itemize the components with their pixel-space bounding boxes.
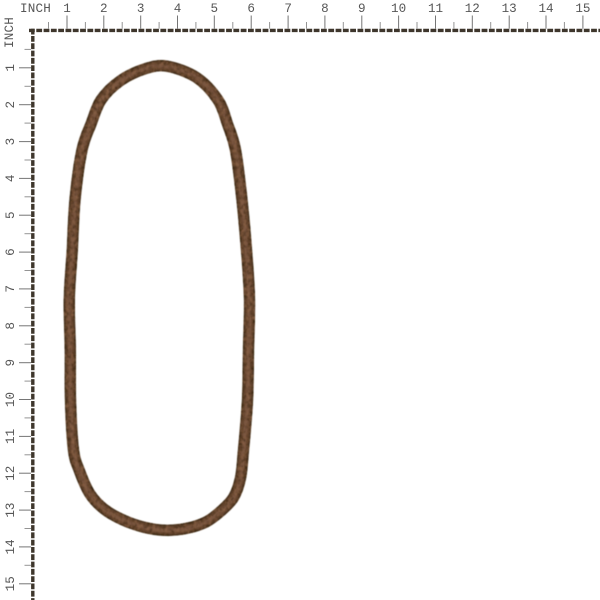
svg-text:2: 2	[100, 2, 108, 16]
svg-text:INCH: INCH	[3, 17, 17, 48]
svg-text:5: 5	[4, 211, 18, 219]
svg-text:8: 8	[321, 2, 329, 16]
svg-text:14: 14	[538, 2, 553, 16]
svg-text:5: 5	[211, 2, 219, 16]
svg-text:12: 12	[465, 2, 480, 16]
svg-text:1: 1	[63, 2, 71, 16]
svg-text:12: 12	[4, 466, 18, 481]
svg-text:7: 7	[4, 285, 18, 293]
svg-text:9: 9	[358, 2, 366, 16]
svg-text:3: 3	[4, 138, 18, 146]
svg-text:10: 10	[4, 392, 18, 407]
svg-text:11: 11	[4, 429, 18, 444]
svg-text:1: 1	[4, 64, 18, 72]
svg-text:14: 14	[4, 539, 18, 554]
svg-text:9: 9	[4, 359, 18, 367]
svg-text:7: 7	[284, 2, 292, 16]
svg-text:4: 4	[174, 2, 182, 16]
svg-text:6: 6	[4, 248, 18, 256]
svg-text:2: 2	[4, 101, 18, 109]
svg-text:13: 13	[4, 503, 18, 518]
svg-text:15: 15	[4, 576, 18, 591]
svg-text:11: 11	[428, 2, 443, 16]
svg-text:6: 6	[247, 2, 255, 16]
svg-text:15: 15	[575, 2, 590, 16]
svg-text:10: 10	[391, 2, 406, 16]
svg-text:8: 8	[4, 322, 18, 330]
svg-text:4: 4	[4, 175, 18, 183]
svg-text:INCH: INCH	[20, 2, 51, 16]
svg-text:13: 13	[502, 2, 517, 16]
svg-text:3: 3	[137, 2, 145, 16]
